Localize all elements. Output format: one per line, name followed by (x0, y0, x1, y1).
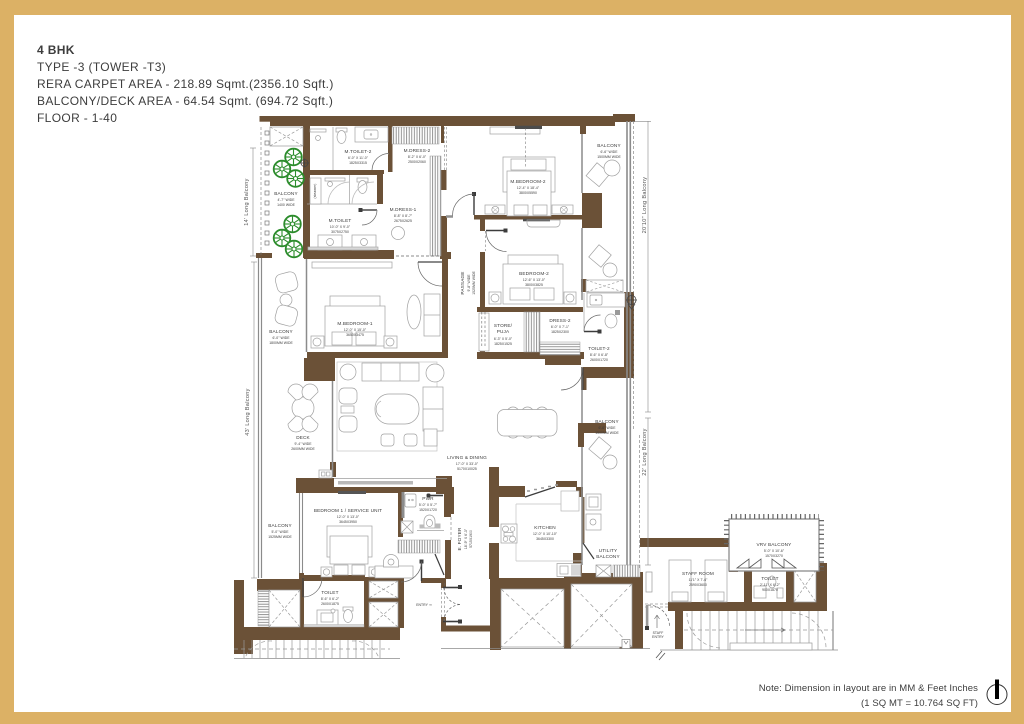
svg-text:1520X1720: 1520X1720 (419, 508, 437, 512)
svg-text:3645X3300: 3645X3300 (536, 537, 554, 541)
svg-text:6'-0" X 11'-0": 6'-0" X 11'-0" (348, 156, 369, 160)
svg-text:2600MM WIDE: 2600MM WIDE (291, 447, 315, 451)
svg-text:4'-7" WIDE: 4'-7" WIDE (277, 198, 295, 202)
svg-text:3650X3475: 3650X3475 (346, 333, 364, 337)
svg-text:8'-6" X 6'-8": 8'-6" X 6'-8" (590, 353, 609, 357)
svg-text:LIVING & DINING: LIVING & DINING (447, 455, 487, 460)
svg-text:5715X1900: 5715X1900 (469, 530, 473, 548)
svg-text:12'-6" X 13'-0": 12'-6" X 13'-0" (523, 278, 546, 282)
svg-text:1825X2300: 1825X2300 (551, 330, 569, 334)
svg-text:TOILET: TOILET (321, 590, 338, 595)
svg-text:M.BEDROOM-1: M.BEDROOM-1 (337, 321, 372, 326)
svg-text:3075X2750: 3075X2750 (331, 230, 349, 234)
svg-text:M.TOILET-2: M.TOILET-2 (345, 149, 372, 154)
svg-text:BALCONY: BALCONY (274, 191, 298, 196)
svg-text:2600X1875: 2600X1875 (321, 602, 339, 606)
svg-text:8'-2" X 6'-0": 8'-2" X 6'-0" (408, 155, 427, 159)
svg-text:TOILET-2: TOILET-2 (588, 346, 610, 351)
svg-text:22' Long Balcony: 22' Long Balcony (642, 428, 648, 476)
svg-text:12'-4" X 18'-4": 12'-4" X 18'-4" (517, 186, 540, 190)
svg-text:1525MM WIDE: 1525MM WIDE (268, 535, 292, 539)
svg-text:BALCONY: BALCONY (268, 523, 292, 528)
svg-text:5'-0" WIDE: 5'-0" WIDE (271, 530, 289, 534)
svg-text:VRV BALCONY: VRV BALCONY (757, 542, 793, 547)
svg-text:BEDROOM-2: BEDROOM-2 (519, 271, 549, 276)
svg-text:ENTRY: ENTRY (652, 635, 664, 639)
svg-text:M.TOILET: M.TOILET (329, 218, 352, 223)
svg-text:12'-0" X 15'-0": 12'-0" X 15'-0" (344, 328, 367, 332)
svg-text:6'-0" WIDE: 6'-0" WIDE (272, 336, 290, 340)
svg-text:M.BEDROOM-2: M.BEDROOM-2 (510, 179, 545, 184)
svg-text:8'-8" X 8'-7": 8'-8" X 8'-7" (394, 214, 413, 218)
svg-text:2675X2625: 2675X2625 (394, 219, 412, 223)
svg-text:1500MM WIDE: 1500MM WIDE (595, 431, 619, 435)
svg-text:6'-0" X 7'-1": 6'-0" X 7'-1" (551, 325, 570, 329)
svg-text:2500X2060: 2500X2060 (408, 160, 426, 164)
svg-text:TOILET: TOILET (761, 576, 778, 581)
svg-text:5'-0" X 5'-7": 5'-0" X 5'-7" (419, 503, 438, 507)
svg-text:(steamer): (steamer) (313, 184, 317, 199)
svg-text:1800MM WIDE: 1800MM WIDE (269, 341, 293, 345)
svg-text:2'-11" X 6'-2": 2'-11" X 6'-2" (760, 583, 781, 587)
svg-text:DRESS-2: DRESS-2 (549, 318, 571, 323)
svg-text:KITCHEN: KITCHEN (534, 525, 556, 530)
svg-text:BALCONY: BALCONY (596, 554, 620, 559)
svg-text:9'-8" WIDE: 9'-8" WIDE (467, 274, 471, 292)
svg-text:PASSAGE: PASSAGE (460, 271, 465, 294)
svg-text:3800X3825: 3800X3825 (525, 283, 543, 287)
svg-text:5170X10025: 5170X10025 (457, 467, 477, 471)
svg-text:PUJA: PUJA (497, 329, 510, 334)
svg-text:1400 WIDE: 1400 WIDE (277, 203, 295, 207)
svg-text:M.DRESS-2: M.DRESS-2 (404, 148, 431, 153)
svg-text:1500MM WIDE: 1500MM WIDE (597, 155, 621, 159)
svg-text:3800X5590: 3800X5590 (519, 191, 537, 195)
svg-text:6'-6" WIDE: 6'-6" WIDE (600, 150, 618, 154)
svg-text:12'-0" X 10'-10": 12'-0" X 10'-10" (533, 532, 558, 536)
svg-text:2600X1720: 2600X1720 (590, 358, 608, 362)
svg-text:BEDROOM 1 / SERVICE UNIT: BEDROOM 1 / SERVICE UNIT (314, 508, 382, 513)
svg-text:20'10" Long Balcony: 20'10" Long Balcony (642, 177, 648, 234)
svg-text:6'-3" X 5'-0": 6'-3" X 5'-0" (494, 337, 513, 341)
svg-text:STORE/: STORE/ (494, 323, 513, 328)
svg-text:3645X3950: 3645X3950 (339, 520, 357, 524)
svg-text:STAFF ROOM: STAFF ROOM (682, 571, 714, 576)
svg-text:PWR: PWR (422, 496, 434, 501)
svg-text:BALCONY: BALCONY (597, 143, 621, 148)
svg-text:UTILITY: UTILITY (599, 548, 618, 553)
svg-text:1525MM WIDE: 1525MM WIDE (472, 271, 476, 295)
svg-text:17'-0" X 33'-0": 17'-0" X 33'-0" (456, 462, 479, 466)
svg-text:M.DRESS-1: M.DRESS-1 (390, 207, 417, 212)
svg-text:1825X3315: 1825X3315 (349, 161, 367, 165)
svg-text:BALCONY: BALCONY (595, 419, 619, 424)
svg-text:ENTRY ⇒: ENTRY ⇒ (416, 603, 432, 607)
svg-text:1570X3270: 1570X3270 (765, 554, 783, 558)
svg-text:1825X1525: 1825X1525 (494, 342, 512, 346)
svg-text:2590X3600: 2590X3600 (689, 583, 707, 587)
svg-text:DECK: DECK (296, 435, 310, 440)
svg-text:BALCONY: BALCONY (269, 329, 293, 334)
svg-text:8'-6" X 6'-2": 8'-6" X 6'-2" (321, 597, 340, 601)
svg-text:12'-0" X 13'-0": 12'-0" X 13'-0" (337, 515, 360, 519)
svg-text:E. FOYER: E. FOYER (457, 527, 462, 551)
svg-text:6'-6" WIDE: 6'-6" WIDE (598, 426, 616, 430)
svg-text:9'-4" WIDE: 9'-4" WIDE (294, 442, 312, 446)
svg-text:11'1" X 7'-6": 11'1" X 7'-6" (689, 578, 709, 582)
svg-text:900X1870: 900X1870 (762, 588, 778, 592)
svg-text:18'-9" X 6'-3": 18'-9" X 6'-3" (464, 528, 468, 549)
svg-text:10'-0" X 9'-0": 10'-0" X 9'-0" (330, 225, 351, 229)
svg-text:43' Long Balcony: 43' Long Balcony (245, 388, 251, 436)
svg-text:14' Long Balcony: 14' Long Balcony (244, 178, 250, 226)
svg-text:5'-0" X 10'-6": 5'-0" X 10'-6" (764, 549, 785, 553)
